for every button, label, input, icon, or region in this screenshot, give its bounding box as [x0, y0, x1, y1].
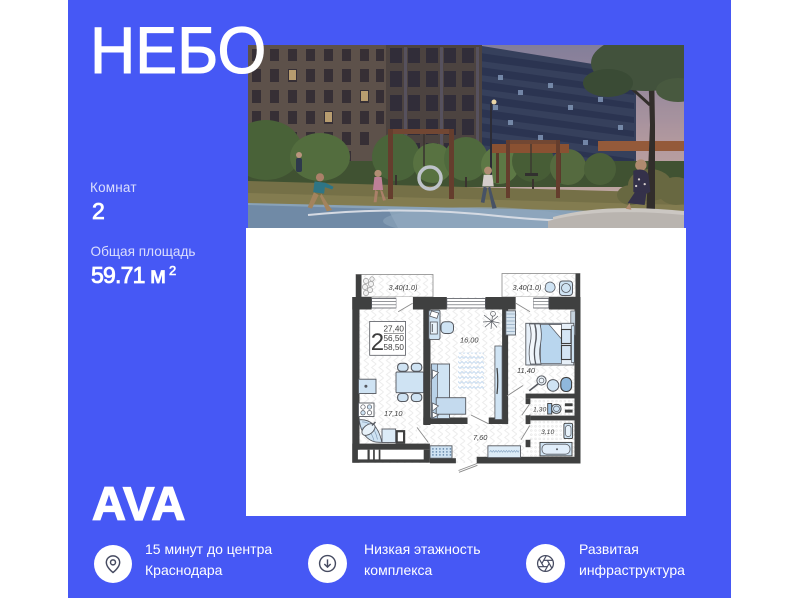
svg-text:27,40: 27,40 [384, 325, 405, 334]
svg-text:17,10: 17,10 [384, 409, 403, 418]
svg-text:1,30: 1,30 [533, 407, 546, 414]
svg-text:3,10: 3,10 [541, 429, 554, 436]
svg-text:11,40: 11,40 [517, 366, 536, 375]
svg-text:2: 2 [371, 329, 384, 356]
svg-text:58,50: 58,50 [384, 343, 405, 352]
svg-text:3,40(1.0): 3,40(1.0) [389, 283, 418, 292]
svg-text:7,60: 7,60 [473, 433, 488, 442]
svg-text:3,40(1.0): 3,40(1.0) [513, 283, 542, 292]
svg-text:16,00: 16,00 [460, 336, 479, 345]
svg-text:56,50: 56,50 [384, 334, 405, 343]
